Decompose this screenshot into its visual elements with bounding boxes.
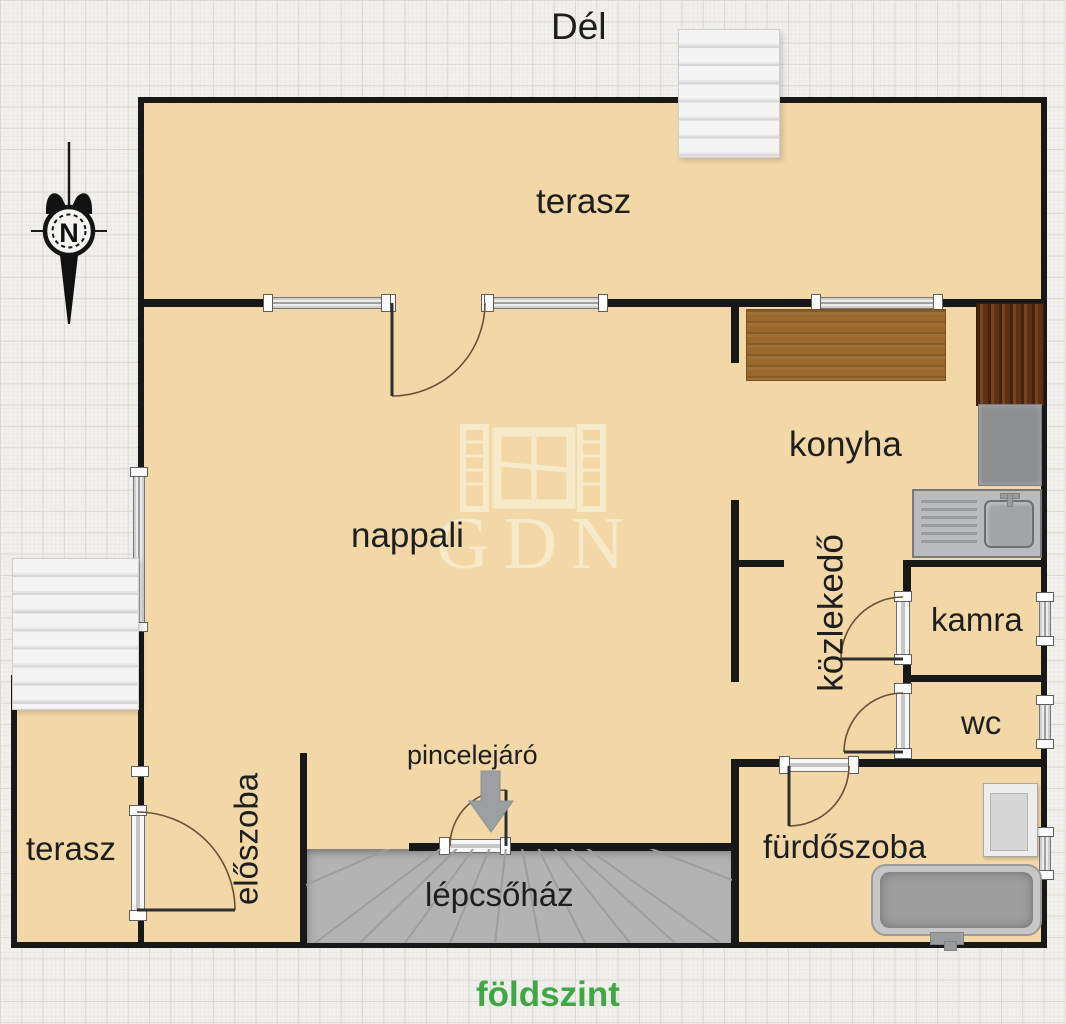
- terrace-door-opening: [388, 296, 489, 310]
- stove: [978, 404, 1042, 486]
- wall-segment: [731, 500, 739, 682]
- bathtub-faucet-icon: [944, 941, 957, 951]
- room-label-stairwell: lépcsőház: [425, 878, 574, 911]
- wall-segment: [853, 759, 1042, 767]
- sink-drainboard: [921, 500, 977, 546]
- bathtub-basin: [880, 872, 1033, 928]
- wall-segment: [731, 560, 784, 567]
- floor-title: földszint: [476, 977, 620, 1012]
- sink-basin: [984, 500, 1034, 548]
- window: [1039, 831, 1051, 876]
- door-threshold: [782, 758, 856, 772]
- wall-segment: [731, 299, 739, 363]
- wall-segment: [903, 675, 1042, 682]
- kitchen-sink: [912, 489, 1042, 558]
- room-label-pantry: kamra: [931, 603, 1023, 636]
- door-threshold: [131, 808, 145, 918]
- orientation-label-south: Dél: [551, 8, 607, 45]
- room-label-hallway: közlekedő: [814, 534, 849, 692]
- wall-segment: [731, 759, 739, 944]
- wall-cap: [131, 766, 149, 777]
- window: [488, 297, 604, 309]
- wall-segment: [505, 843, 733, 851]
- kitchen-cabinet: [976, 303, 1044, 406]
- room-label-living-room: nappali: [351, 518, 464, 553]
- window: [815, 297, 939, 309]
- room-label-entrance-hall: előszoba: [230, 773, 263, 905]
- room-label-bathroom: fürdőszoba: [763, 830, 926, 863]
- bathtub: [871, 864, 1042, 936]
- exterior-stairs-top: [678, 29, 780, 158]
- compass-north-label: N: [59, 218, 79, 248]
- door-threshold: [442, 839, 508, 853]
- exterior-stairs-left: [12, 558, 139, 710]
- terrace-left-area: [11, 675, 138, 948]
- compass-icon: N: [31, 142, 107, 324]
- wall-segment: [300, 753, 307, 944]
- door-threshold: [896, 686, 910, 756]
- washing-machine: [983, 783, 1038, 857]
- window: [267, 297, 387, 309]
- sink-faucet-icon: [1007, 493, 1013, 507]
- label-basement-entry: pincelejáró: [407, 742, 538, 769]
- room-label-toilet: wc: [961, 706, 1001, 739]
- room-label-kitchen: konyha: [789, 427, 902, 462]
- kitchen-counter: [746, 309, 946, 381]
- house-outline: [138, 97, 1047, 948]
- window: [1039, 596, 1051, 642]
- window: [1039, 699, 1051, 745]
- room-label-terrace-top: terasz: [536, 184, 631, 219]
- washing-machine-door: [990, 793, 1028, 851]
- door-threshold: [896, 594, 910, 662]
- wall-segment: [903, 560, 1042, 567]
- floor-plan-canvas: GDN: [0, 0, 1066, 1024]
- room-label-terrace-side: terasz: [26, 832, 116, 865]
